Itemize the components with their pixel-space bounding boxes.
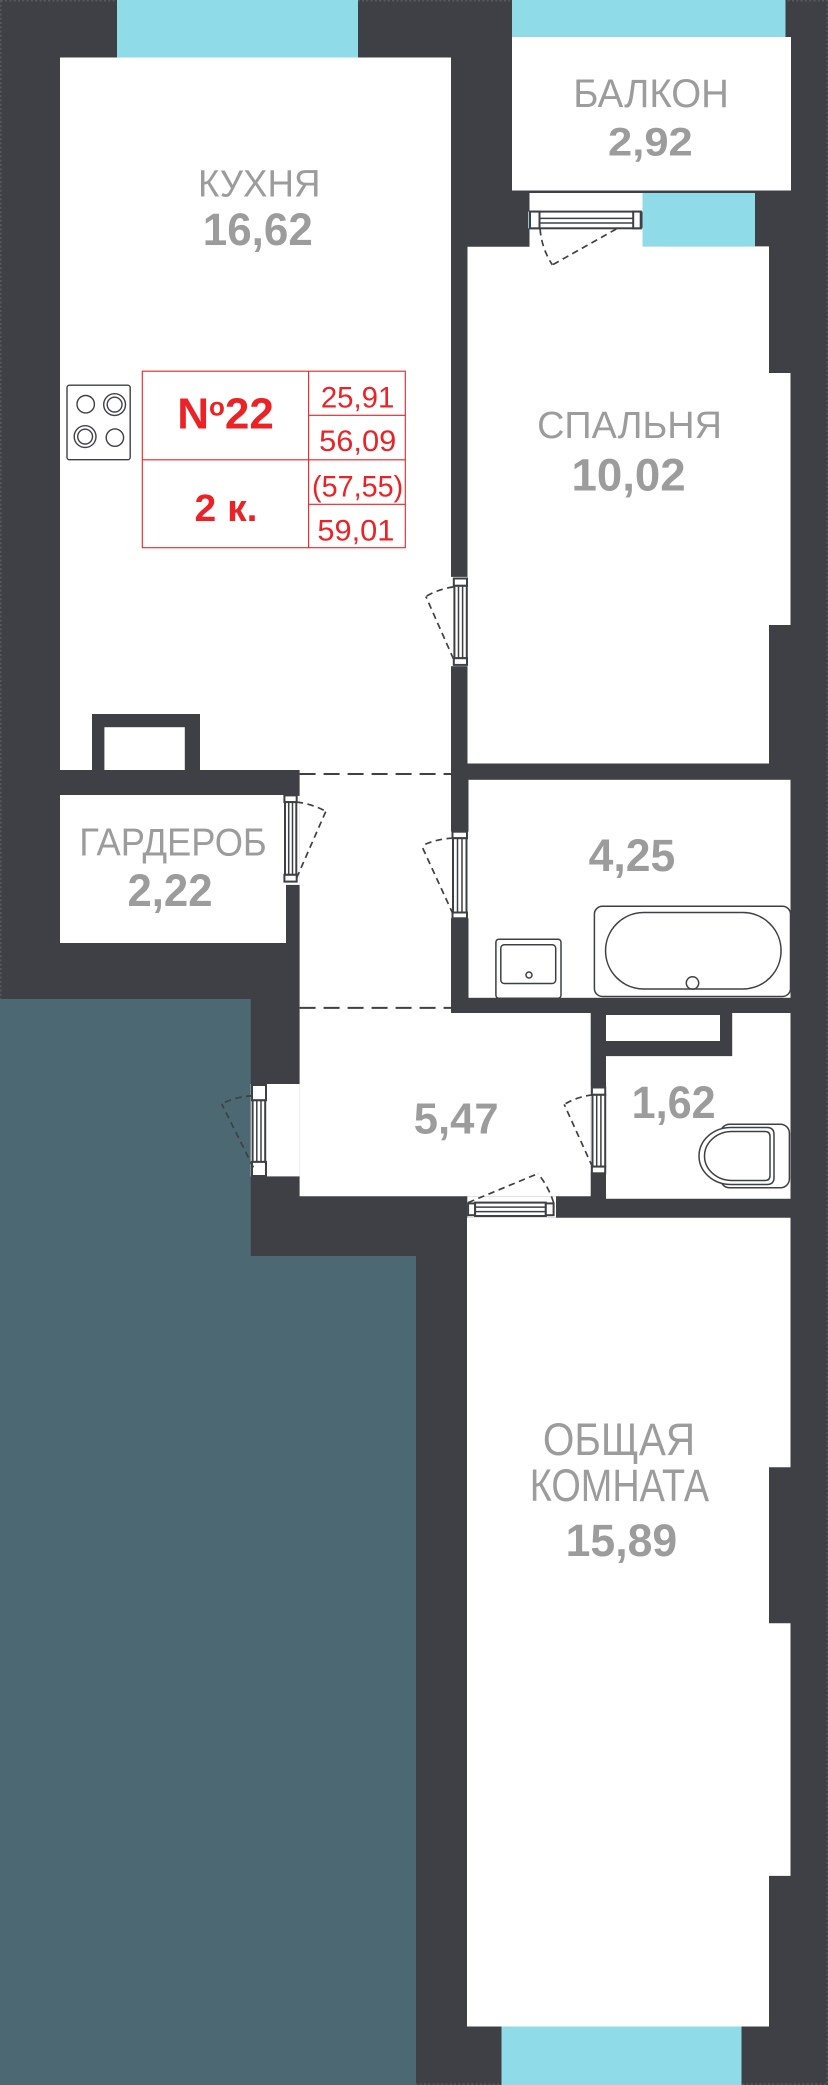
svg-text:56,09: 56,09	[319, 425, 396, 458]
svg-text:59,01: 59,01	[317, 514, 394, 547]
svg-text:16,62: 16,62	[203, 204, 313, 255]
svg-text:КОМНАТА: КОМНАТА	[530, 1460, 709, 1511]
svg-text:2,92: 2,92	[608, 121, 693, 165]
svg-text:4,25: 4,25	[589, 830, 676, 881]
svg-text:No22: No22	[177, 390, 274, 439]
svg-text:10,02: 10,02	[572, 450, 686, 501]
svg-text:КУХНЯ: КУХНЯ	[198, 164, 321, 206]
svg-text:15,89: 15,89	[566, 1515, 678, 1566]
svg-text:ГАРДЕРОБ: ГАРДЕРОБ	[79, 822, 267, 865]
svg-text:25,91: 25,91	[321, 381, 395, 414]
svg-text:СПАЛЬНЯ: СПАЛЬНЯ	[537, 405, 722, 447]
svg-text:(57,55): (57,55)	[312, 471, 403, 504]
svg-text:2,22: 2,22	[127, 865, 212, 916]
svg-text:1,62: 1,62	[632, 1077, 716, 1128]
svg-text:2 к.: 2 к.	[195, 488, 258, 530]
svg-text:БАЛКОН: БАЛКОН	[573, 72, 729, 116]
svg-text:5,47: 5,47	[414, 1095, 499, 1144]
svg-text:ОБЩАЯ: ОБЩАЯ	[543, 1414, 695, 1465]
